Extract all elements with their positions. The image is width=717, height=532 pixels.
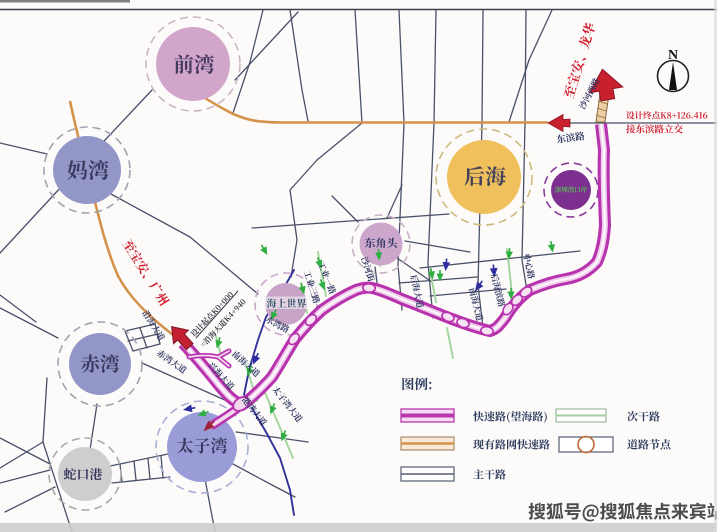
svg-text:N: N [668, 48, 678, 63]
